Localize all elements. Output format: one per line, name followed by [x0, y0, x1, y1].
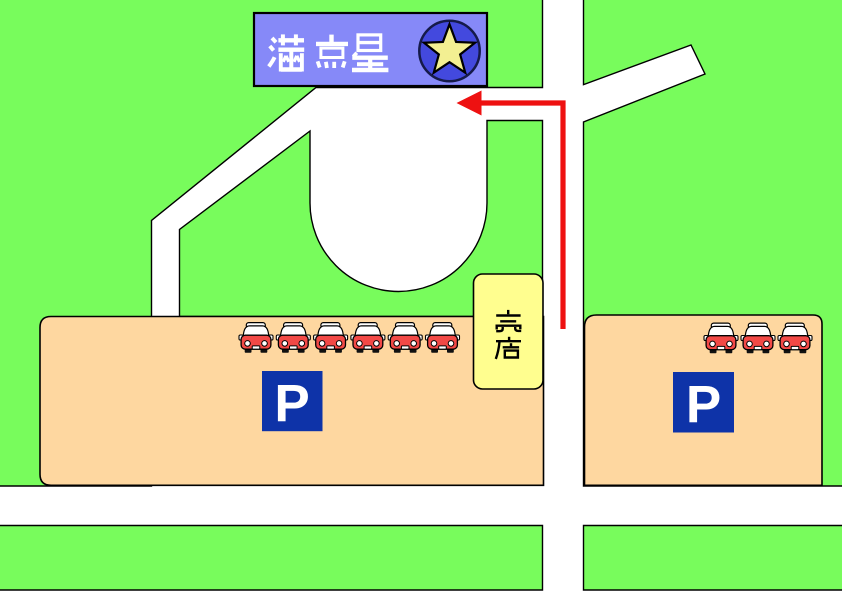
svg-text:P: P	[686, 376, 721, 435]
svg-text:P: P	[274, 375, 309, 434]
